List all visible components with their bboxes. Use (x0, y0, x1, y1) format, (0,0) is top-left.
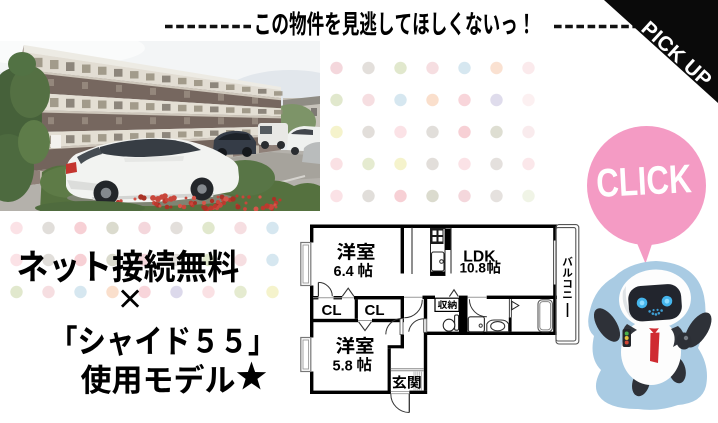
svg-text:CL: CL (365, 302, 385, 319)
svg-text:CLICK: CLICK (595, 156, 693, 206)
svg-text:10.8: 10.8 (460, 261, 487, 276)
svg-text:6.4: 6.4 (334, 264, 354, 280)
svg-text:CL: CL (322, 302, 342, 319)
svg-text:5.8: 5.8 (333, 358, 353, 374)
